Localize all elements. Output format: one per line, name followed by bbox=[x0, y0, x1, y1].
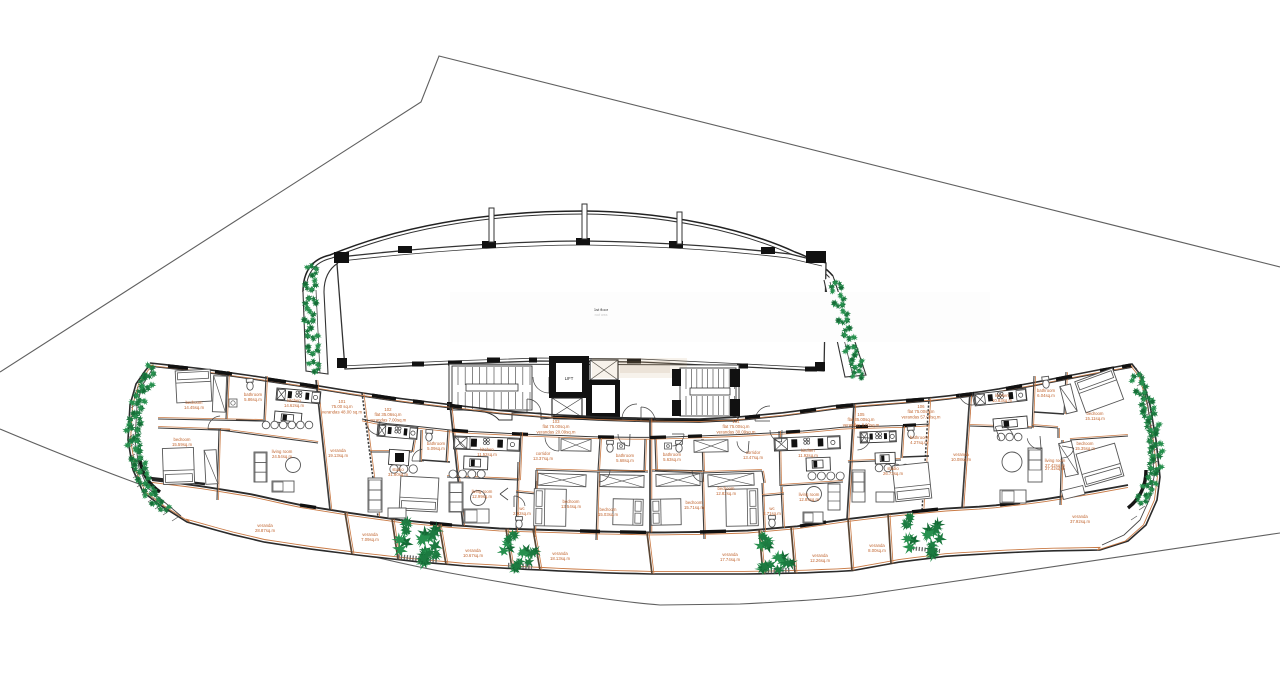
svg-text:LIFT: LIFT bbox=[565, 376, 574, 381]
svg-text:4.27sq.m: 4.27sq.m bbox=[910, 440, 928, 445]
svg-text:verandas 8.00sq.m: verandas 8.00sq.m bbox=[843, 422, 880, 427]
svg-text:13.37sq.m: 13.37sq.m bbox=[533, 456, 553, 461]
svg-text:15.59sq.m: 15.59sq.m bbox=[172, 442, 192, 447]
svg-text:5.68sq.m: 5.68sq.m bbox=[616, 458, 634, 463]
svg-text:7.09sq.m: 7.09sq.m bbox=[361, 537, 379, 542]
svg-text:6.04sq.m: 6.04sq.m bbox=[1037, 393, 1055, 398]
svg-text:12.26sq.m: 12.26sq.m bbox=[810, 558, 830, 563]
svg-text:10.67sq.m: 10.67sq.m bbox=[463, 553, 483, 558]
svg-text:24.54sq.m: 24.54sq.m bbox=[272, 454, 292, 459]
svg-text:19.13sq.m: 19.13sq.m bbox=[328, 453, 348, 458]
svg-text:verandas 7.00sq.m: verandas 7.00sq.m bbox=[370, 417, 407, 422]
svg-text:15.35sq.m: 15.35sq.m bbox=[1075, 446, 1095, 451]
svg-text:verandas 30.09sq.m: verandas 30.09sq.m bbox=[717, 429, 756, 434]
svg-text:15.11sq.m: 15.11sq.m bbox=[1085, 416, 1105, 421]
svg-text:27.42sq.m: 27.42sq.m bbox=[1045, 466, 1065, 471]
svg-text:5.86sq.m: 5.86sq.m bbox=[244, 397, 262, 402]
svg-text:verandas 20.09sq.m: verandas 20.09sq.m bbox=[537, 429, 576, 434]
svg-text:10.08sq.m: 10.08sq.m bbox=[951, 457, 971, 462]
svg-text:11.52sq.m: 11.52sq.m bbox=[477, 452, 497, 457]
svg-text:roof area: roof area bbox=[595, 313, 608, 317]
svg-text:15.71sq.m: 15.71sq.m bbox=[684, 505, 704, 510]
svg-text:verandas 57.00sq.m: verandas 57.00sq.m bbox=[902, 414, 941, 419]
svg-text:2.71sq.m: 2.71sq.m bbox=[763, 511, 781, 516]
svg-text:10.83sq.m: 10.83sq.m bbox=[992, 398, 1012, 403]
svg-text:37.92sq.m: 37.92sq.m bbox=[1070, 519, 1090, 524]
svg-text:1st floor: 1st floor bbox=[594, 307, 609, 312]
svg-text:18.13sq.m: 18.13sq.m bbox=[550, 556, 570, 561]
svg-text:31.80sq.m: 31.80sq.m bbox=[388, 472, 408, 477]
svg-text:12.84sq.m: 12.84sq.m bbox=[799, 497, 819, 502]
svg-text:5.63sq.m: 5.63sq.m bbox=[663, 457, 681, 462]
svg-text:28.87sq.m: 28.87sq.m bbox=[255, 528, 275, 533]
svg-text:14.45sq.m: 14.45sq.m bbox=[184, 405, 204, 410]
svg-text:17.74sq.m: 17.74sq.m bbox=[720, 557, 740, 562]
svg-text:12.82sq.m: 12.82sq.m bbox=[716, 491, 736, 496]
svg-text:12.99sq.m: 12.99sq.m bbox=[472, 494, 492, 499]
svg-text:11.92sq.m: 11.92sq.m bbox=[798, 453, 818, 458]
svg-text:14.62sq.m: 14.62sq.m bbox=[284, 403, 304, 408]
svg-text:8.00sq.m: 8.00sq.m bbox=[868, 548, 886, 553]
svg-text:15.03sq.m: 15.03sq.m bbox=[598, 512, 618, 517]
svg-text:verandas 48.00 sq.m: verandas 48.00 sq.m bbox=[322, 409, 363, 414]
svg-text:13.54sq.m: 13.54sq.m bbox=[561, 504, 581, 509]
svg-text:26.73sq.m: 26.73sq.m bbox=[883, 471, 903, 476]
svg-text:2.92sq.m: 2.92sq.m bbox=[513, 511, 531, 516]
svg-text:5.09sq.m: 5.09sq.m bbox=[427, 446, 445, 451]
svg-text:13.47sq.m: 13.47sq.m bbox=[743, 455, 763, 460]
